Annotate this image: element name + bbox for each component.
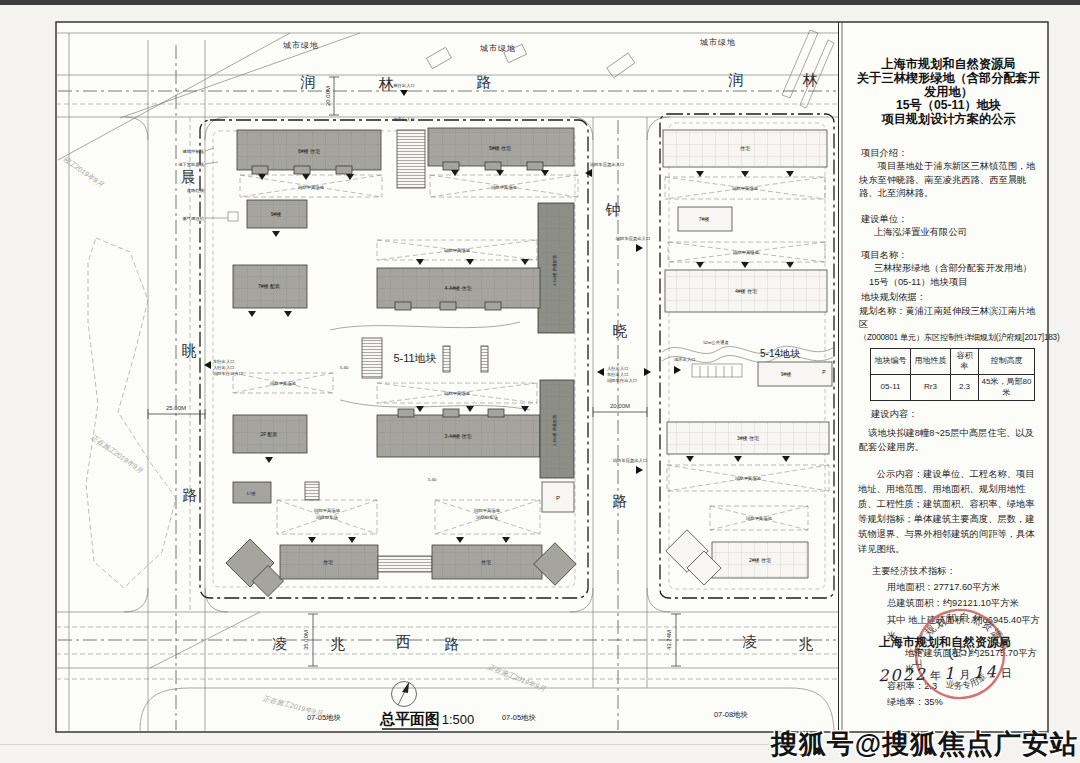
svg-text:2F 配套: 2F 配套 bbox=[260, 431, 277, 438]
title-line: 项目规划设计方案的公示 bbox=[856, 113, 1041, 127]
svg-text:晨: 晨 bbox=[181, 169, 196, 185]
svg-text:住宅: 住宅 bbox=[323, 559, 333, 565]
svg-text:总平面图: 总平面图 bbox=[379, 710, 440, 727]
svg-text:35.00M: 35.00M bbox=[303, 630, 309, 650]
svg-text:钟: 钟 bbox=[605, 202, 621, 218]
svg-text:建筑控制线: 建筑控制线 bbox=[182, 149, 205, 154]
svg-text:燃气调压站: 燃气调压站 bbox=[183, 216, 205, 221]
svg-text:地库出入口: 地库出入口 bbox=[392, 117, 414, 122]
basis-line: （Z000801 单元）东区控制性详细规划(沪府规[2017]183) bbox=[859, 332, 1041, 344]
content-label: 建设内容： bbox=[871, 408, 1041, 421]
svg-text:5-11地块: 5-11地块 bbox=[393, 352, 436, 364]
svg-text:林: 林 bbox=[803, 72, 818, 88]
svg-text:晓: 晓 bbox=[613, 323, 628, 339]
intro-label: 项目介绍： bbox=[861, 147, 1041, 160]
svg-text:P: P bbox=[556, 495, 560, 501]
svg-text:兆: 兆 bbox=[331, 636, 346, 652]
indicators-label: 主要经济技术指标： bbox=[872, 565, 1041, 578]
svg-text:林: 林 bbox=[379, 76, 394, 92]
svg-text:20.00M: 20.00M bbox=[325, 86, 331, 106]
svg-text:6#楼 住宅: 6#楼 住宅 bbox=[298, 148, 320, 154]
sohu-watermark: 搜狐号@搜狐焦点广安站 bbox=[771, 726, 1078, 762]
svg-text:路: 路 bbox=[477, 74, 492, 90]
table-header: 用地性质 bbox=[911, 348, 951, 374]
title-line: 上海市规划和自然资源局 bbox=[856, 58, 1041, 72]
date-day: 14 bbox=[973, 662, 998, 682]
table-header: 控制高度 bbox=[979, 348, 1035, 374]
svg-text:43.74M: 43.74M bbox=[666, 630, 672, 650]
svg-text:4#楼 住宅: 4#楼 住宅 bbox=[735, 288, 757, 294]
builder-label: 建设单位： bbox=[861, 213, 1041, 226]
intro-text: 项目基地处于浦东新区三林镇范围，地块东至钟晓路、南至凌兆西路、西至晨眺路、北至润… bbox=[859, 160, 1041, 200]
svg-text:07-08地块: 07-08地块 bbox=[714, 710, 749, 719]
svg-text:3#楼 住宅: 3#楼 住宅 bbox=[737, 435, 759, 441]
table-cell: 45米，局部80米 bbox=[979, 374, 1035, 400]
content-text: 该地块拟建8幢8~25层中高层住宅、以及配套公建用房。 bbox=[859, 427, 1041, 454]
svg-text:7#楼 配套: 7#楼 配套 bbox=[258, 283, 280, 290]
svg-text:52m公共通道: 52m公共通道 bbox=[703, 339, 729, 345]
title-line: 15号（05-11）地块 bbox=[856, 99, 1041, 113]
svg-text:消防车应急出入口: 消防车应急出入口 bbox=[615, 236, 650, 241]
svg-text:兆: 兆 bbox=[799, 636, 814, 652]
svg-text:路: 路 bbox=[183, 487, 198, 503]
svg-text:城市绿地: 城市绿地 bbox=[699, 38, 736, 47]
svg-text:3-A#楼 住宅: 3-A#楼 住宅 bbox=[445, 433, 472, 439]
svg-text:西: 西 bbox=[396, 634, 411, 650]
table-cell: 05-11 bbox=[871, 374, 911, 400]
svg-text:路: 路 bbox=[445, 636, 460, 652]
table-cell: 2.3 bbox=[951, 374, 979, 400]
basis-label: 地块规划依据： bbox=[861, 291, 1041, 304]
svg-text:7#楼: 7#楼 bbox=[699, 216, 710, 222]
svg-text:城市绿地: 城市绿地 bbox=[479, 44, 516, 53]
svg-text:1:500: 1:500 bbox=[442, 712, 475, 727]
svg-text:地下室轮廓线: 地下室轮廓线 bbox=[177, 162, 204, 167]
svg-text:路: 路 bbox=[613, 493, 628, 509]
agency-signature: 上海市规划和自然资源局 bbox=[842, 634, 1048, 651]
svg-text:住宅: 住宅 bbox=[481, 559, 491, 565]
project-name-line: 三林楔形绿地（含部分配套开发用地） bbox=[874, 262, 1041, 275]
svg-text:住宅: 住宅 bbox=[740, 145, 750, 151]
notice-text: 公示内容：建设单位、工程名称、项目地址、用地范围、用地面积、规划用地性质、工程性… bbox=[858, 467, 1041, 557]
svg-text:凌: 凌 bbox=[743, 634, 758, 650]
announcement-panel: 上海市规划和自然资源局 关于三林楔形绿地（含部分配套开发用地） 15号（05-1… bbox=[842, 22, 1048, 732]
svg-text:城市绿地: 城市绿地 bbox=[282, 41, 319, 50]
builder-name: 上海泓泽置业有限公司 bbox=[874, 226, 1041, 239]
panel-title: 上海市规划和自然资源局 关于三林楔形绿地（含部分配套开发用地） 15号（05-1… bbox=[856, 58, 1041, 127]
svg-text:5.40: 5.40 bbox=[428, 477, 437, 482]
table-cell: Rr3 bbox=[911, 374, 951, 400]
project-name-line: 15号（05-11）地块项目 bbox=[869, 276, 1041, 289]
svg-text:07-05地块: 07-05地块 bbox=[502, 713, 537, 722]
table-header: 地块编号 bbox=[871, 348, 911, 374]
svg-text:润: 润 bbox=[300, 74, 316, 90]
svg-text:4-A#楼 住宅: 4-A#楼 住宅 bbox=[445, 285, 472, 291]
svg-text:润: 润 bbox=[728, 72, 744, 88]
svg-text:眺: 眺 bbox=[182, 343, 197, 359]
svg-text:道路红线: 道路红线 bbox=[187, 188, 205, 193]
title-line: 关于三林楔形绿地（含部分配套开发用地） bbox=[856, 72, 1041, 100]
plot-parameters-table: 地块编号 用地性质 容积率 控制高度 05-11 Rr3 2.3 45米，局部8… bbox=[870, 348, 1035, 401]
svg-text:消防车应急出入口: 消防车应急出入口 bbox=[612, 458, 647, 463]
svg-text:20.00M: 20.00M bbox=[610, 403, 630, 409]
basis-line: 规划名称：黄浦江南延伸段三林滨江南片地区 bbox=[859, 305, 1041, 332]
table-header: 容积率 bbox=[951, 348, 979, 374]
date-month: 1 bbox=[944, 664, 957, 683]
official-seal: 上海市规划和自然资源局 (15) 业务专用章 bbox=[906, 600, 1014, 708]
svg-text:5#楼 住宅: 5#楼 住宅 bbox=[489, 145, 511, 151]
svg-text:地库出入口: 地库出入口 bbox=[673, 357, 695, 362]
svg-text:凌: 凌 bbox=[273, 636, 288, 652]
svg-text:5-14地块: 5-14地块 bbox=[760, 348, 801, 359]
svg-text:5.40: 5.40 bbox=[340, 365, 349, 370]
svg-text:消防车应急出入口: 消防车应急出入口 bbox=[589, 162, 624, 167]
date-year: 2022 bbox=[878, 665, 927, 686]
svg-text:9#楼: 9#楼 bbox=[271, 211, 282, 217]
project-label: 项目名称： bbox=[861, 249, 1041, 262]
svg-text:1#楼: 1#楼 bbox=[246, 491, 256, 496]
svg-text:2#楼 住宅: 2#楼 住宅 bbox=[749, 557, 771, 563]
svg-text:9#楼: 9#楼 bbox=[781, 371, 792, 377]
svg-text:25.00M: 25.00M bbox=[166, 405, 186, 411]
indicator-line: 用地面积：27717.60平方米 bbox=[887, 579, 1041, 596]
